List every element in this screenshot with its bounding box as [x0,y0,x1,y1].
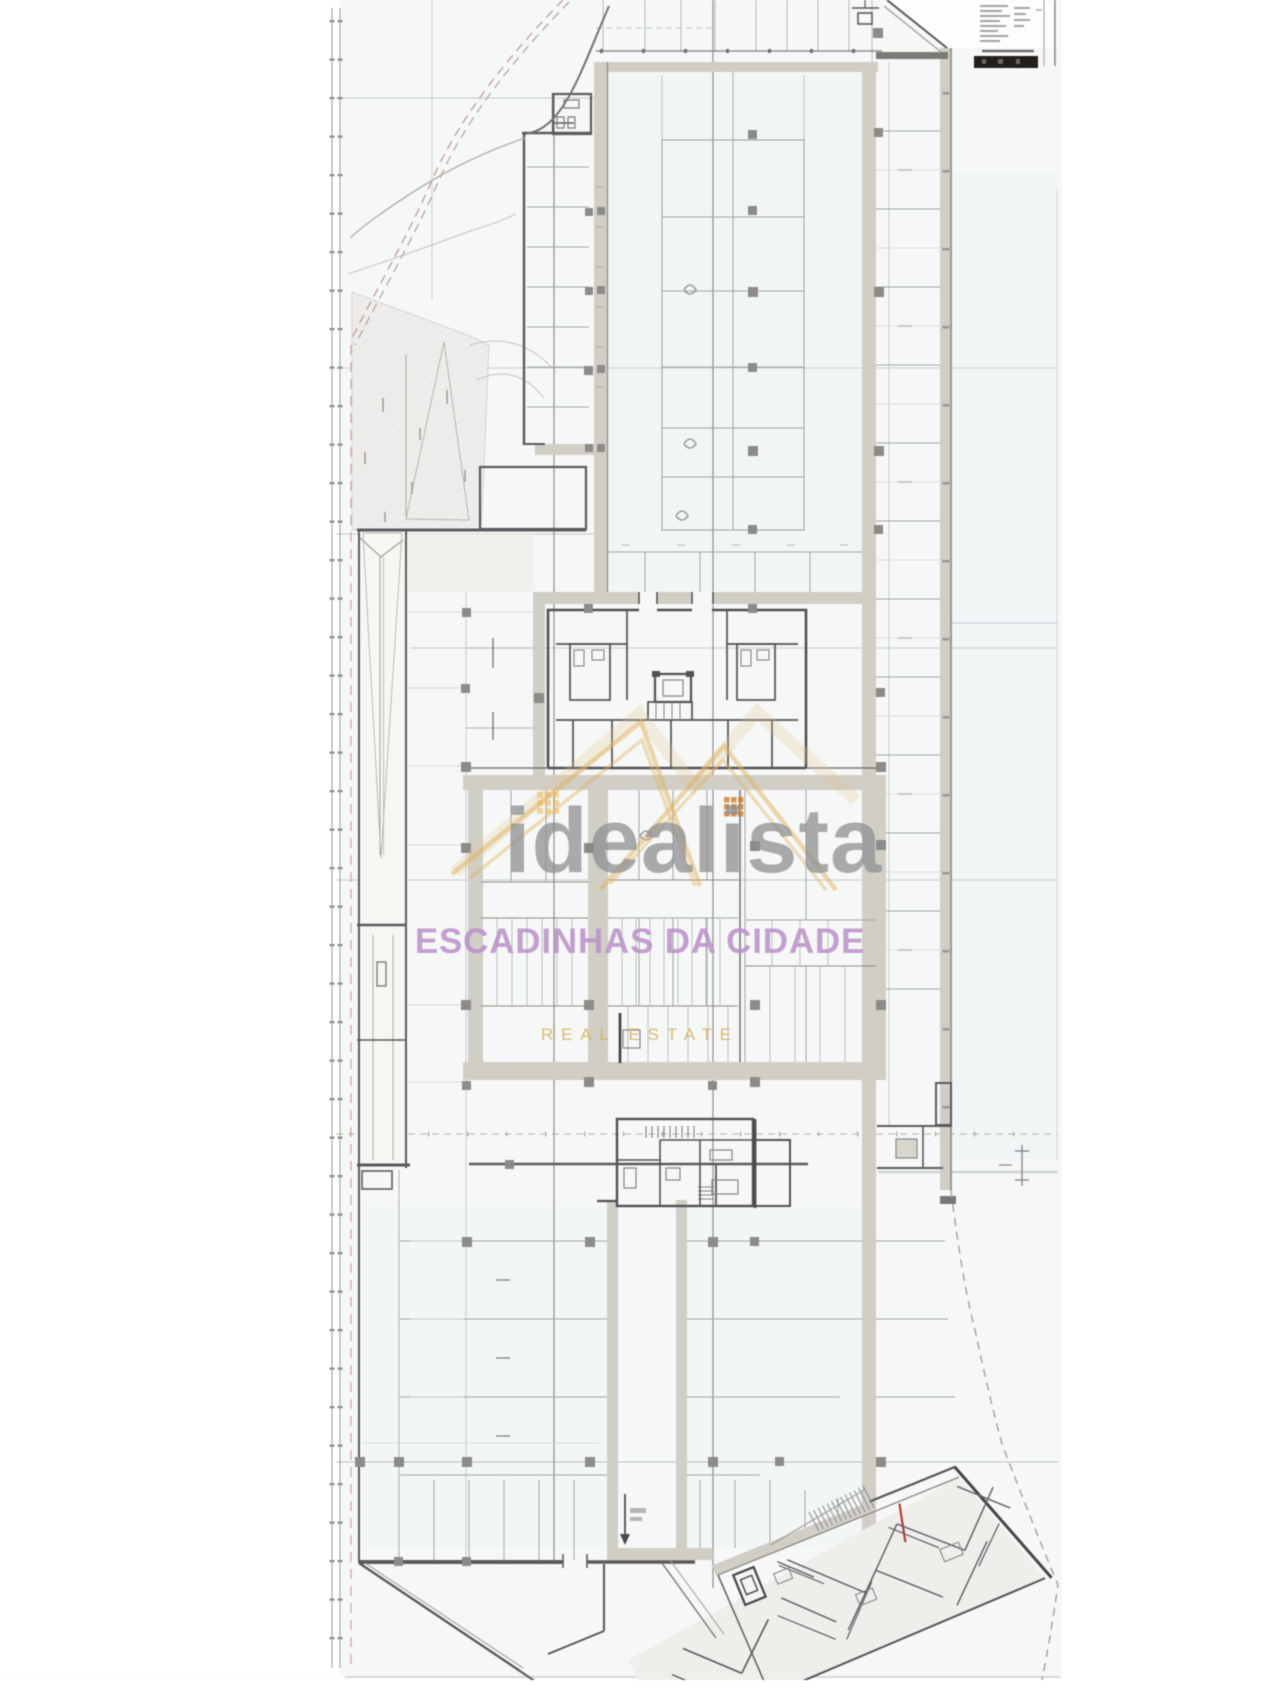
svg-text:idealista: idealista [505,790,882,892]
svg-text:REAL ESTATE: REAL ESTATE [541,1025,739,1044]
svg-text:ESCADINHAS DA CIDADE: ESCADINHAS DA CIDADE [415,922,865,961]
